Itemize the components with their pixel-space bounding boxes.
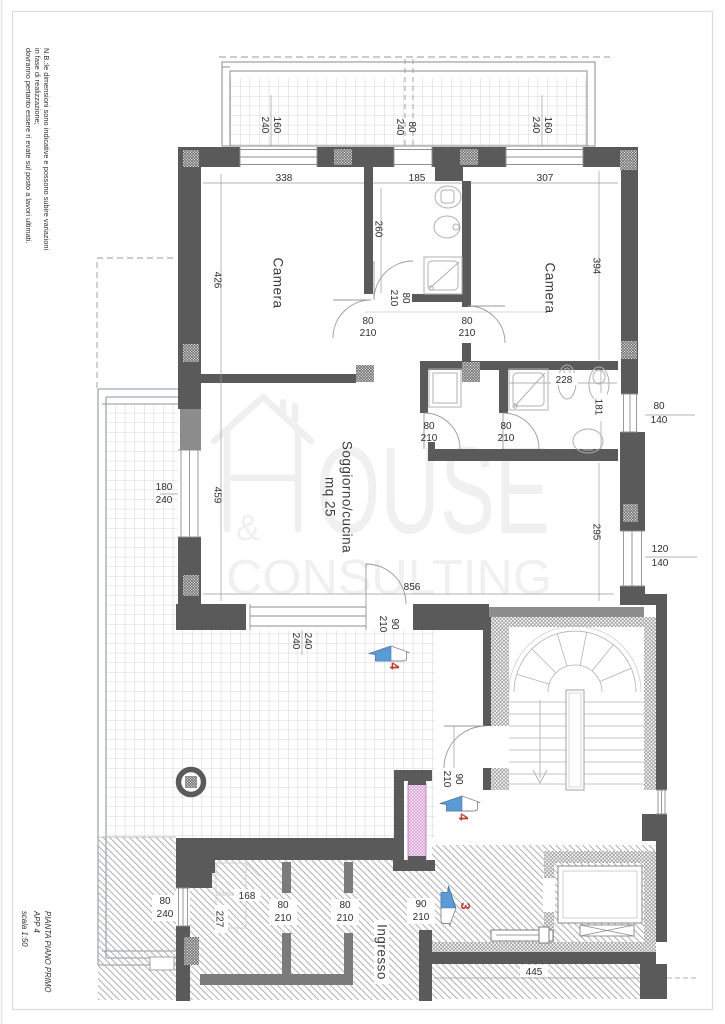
svg-text:210: 210 xyxy=(421,433,438,444)
svg-text:240: 240 xyxy=(302,633,313,650)
svg-text:210: 210 xyxy=(388,290,399,307)
svg-text:Camera: Camera xyxy=(542,262,557,313)
svg-text:240: 240 xyxy=(290,633,301,650)
svg-text:240: 240 xyxy=(157,909,174,920)
svg-text:228: 228 xyxy=(556,375,573,386)
svg-text:N.B.:le dimensioni sono indica: N.B.:le dimensioni sono indicative e pos… xyxy=(42,48,51,250)
svg-text:210: 210 xyxy=(459,328,476,339)
svg-text:210: 210 xyxy=(413,912,430,923)
svg-text:240: 240 xyxy=(530,117,541,134)
svg-text:140: 140 xyxy=(651,415,668,426)
svg-text:210: 210 xyxy=(377,616,388,633)
svg-text:80: 80 xyxy=(406,121,417,133)
svg-text:181: 181 xyxy=(592,399,603,416)
svg-text:80: 80 xyxy=(461,316,473,327)
svg-text:185: 185 xyxy=(409,173,426,184)
svg-text:394: 394 xyxy=(590,258,601,275)
svg-text:scala 1:50: scala 1:50 xyxy=(20,911,29,947)
svg-text:240: 240 xyxy=(394,119,405,136)
svg-text:CONSULTING: CONSULTING xyxy=(226,551,552,605)
svg-text:210: 210 xyxy=(337,913,354,924)
svg-text:260: 260 xyxy=(372,221,383,238)
svg-text:4: 4 xyxy=(456,813,471,821)
svg-text:426: 426 xyxy=(211,272,222,289)
svg-text:140: 140 xyxy=(652,558,669,569)
svg-text:&: & xyxy=(236,507,260,548)
svg-text:210: 210 xyxy=(441,771,452,788)
svg-text:80: 80 xyxy=(339,900,351,911)
svg-text:856: 856 xyxy=(404,582,421,593)
svg-text:227: 227 xyxy=(213,911,224,928)
svg-text:160: 160 xyxy=(271,117,282,134)
svg-text:Camera: Camera xyxy=(270,257,285,308)
svg-text:3: 3 xyxy=(458,902,473,909)
svg-text:240: 240 xyxy=(259,117,270,134)
svg-text:445: 445 xyxy=(526,967,543,978)
svg-text:120: 120 xyxy=(652,544,669,555)
svg-text:80: 80 xyxy=(277,900,289,911)
svg-text:80: 80 xyxy=(362,316,374,327)
svg-text:PIANTA PIANO PRIMO: PIANTA PIANO PRIMO xyxy=(43,911,52,992)
svg-text:210: 210 xyxy=(360,328,377,339)
svg-text:90: 90 xyxy=(453,773,464,785)
svg-text:APP 4: APP 4 xyxy=(32,910,41,933)
svg-text:168: 168 xyxy=(239,891,256,902)
svg-text:295: 295 xyxy=(590,524,601,541)
svg-text:Ingresso: Ingresso xyxy=(374,924,389,980)
svg-text:dovranno pertanto essere ri ev: dovranno pertanto essere ri evate sul po… xyxy=(24,48,33,244)
svg-text:4: 4 xyxy=(387,662,402,670)
svg-text:80: 80 xyxy=(653,401,665,412)
svg-text:338: 338 xyxy=(276,173,293,184)
svg-text:80: 80 xyxy=(500,421,512,432)
svg-text:Soggiorno/cucina: Soggiorno/cucina xyxy=(339,441,354,553)
svg-text:80: 80 xyxy=(400,292,411,304)
svg-text:90: 90 xyxy=(389,618,400,630)
svg-text:80: 80 xyxy=(159,896,171,907)
svg-text:90: 90 xyxy=(415,899,427,910)
svg-text:240: 240 xyxy=(156,495,173,506)
svg-text:180: 180 xyxy=(156,482,173,493)
svg-text:80: 80 xyxy=(423,421,435,432)
svg-text:210: 210 xyxy=(498,433,515,444)
svg-text:mq 25: mq 25 xyxy=(322,477,337,517)
svg-text:210: 210 xyxy=(275,913,292,924)
svg-text:307: 307 xyxy=(537,173,554,184)
svg-text:in fase di realizzazione;: in fase di realizzazione; xyxy=(33,48,42,125)
svg-text:160: 160 xyxy=(542,117,553,134)
svg-text:459: 459 xyxy=(211,487,222,504)
